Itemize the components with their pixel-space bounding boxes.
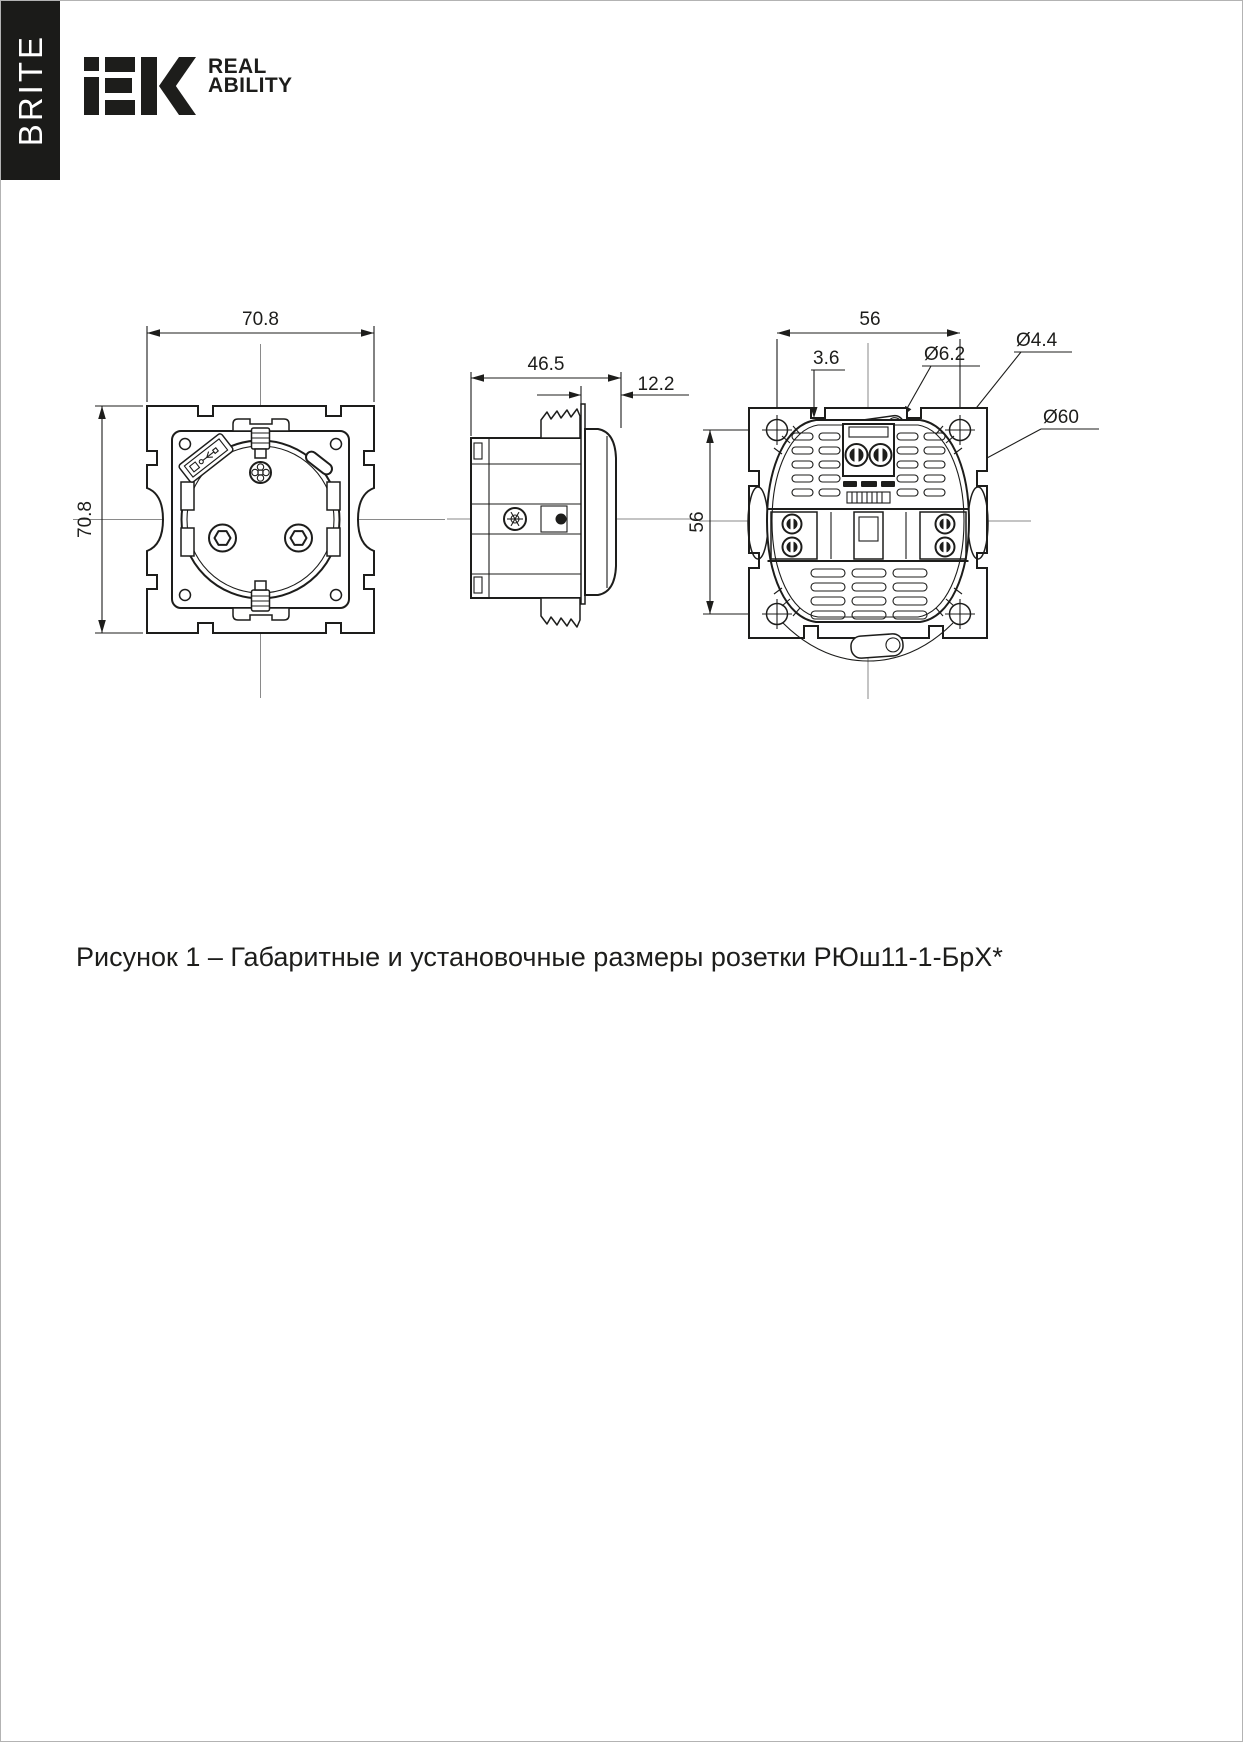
side-claw-top bbox=[541, 409, 580, 438]
brand-header: REAL ABILITY bbox=[84, 55, 404, 119]
brite-series-bar: BRITE bbox=[1, 1, 60, 180]
tagline-line2: ABILITY bbox=[208, 77, 292, 96]
rear-dim-mount-height-label: 56 bbox=[687, 511, 708, 532]
iek-logo-icon bbox=[84, 57, 196, 115]
rear-view-drawing: 56 56 3.6 Ø6.2 Ø4.4 bbox=[691, 271, 1111, 711]
side-cover-profile bbox=[585, 429, 616, 595]
rear-dia-screw-hole-label: Ø4.4 bbox=[1016, 330, 1058, 351]
document-page: BRITE REAL ABILITY bbox=[0, 0, 1243, 1742]
rear-dim-mount-width-label: 56 bbox=[859, 309, 880, 330]
brand-tagline: REAL ABILITY bbox=[208, 58, 292, 95]
front-dim-width-label: 70.8 bbox=[242, 309, 279, 330]
front-view-drawing: 70.8 70.8 bbox=[61, 286, 456, 716]
front-dim-height-label: 70.8 bbox=[75, 501, 96, 538]
series-label: BRITE bbox=[12, 34, 50, 146]
side-dim-depth-front-label: 12.2 bbox=[638, 374, 675, 395]
side-claw-bottom bbox=[541, 598, 580, 627]
rear-dia-mount-slot: Ø6.2 bbox=[903, 344, 980, 416]
rear-dia-mount-slot-label: Ø6.2 bbox=[924, 344, 965, 365]
rear-dim-edge-gap-label: 3.6 bbox=[813, 348, 839, 369]
figure-caption: Рисунок 1 – Габаритные и установочные ра… bbox=[76, 942, 1003, 973]
side-view-drawing: 46.5 12.2 bbox=[441, 286, 703, 716]
front-assembly-screw bbox=[250, 462, 271, 483]
rear-dia-support-body-label: Ø60 bbox=[1043, 407, 1079, 428]
side-dim-depth-total-label: 46.5 bbox=[528, 354, 565, 375]
